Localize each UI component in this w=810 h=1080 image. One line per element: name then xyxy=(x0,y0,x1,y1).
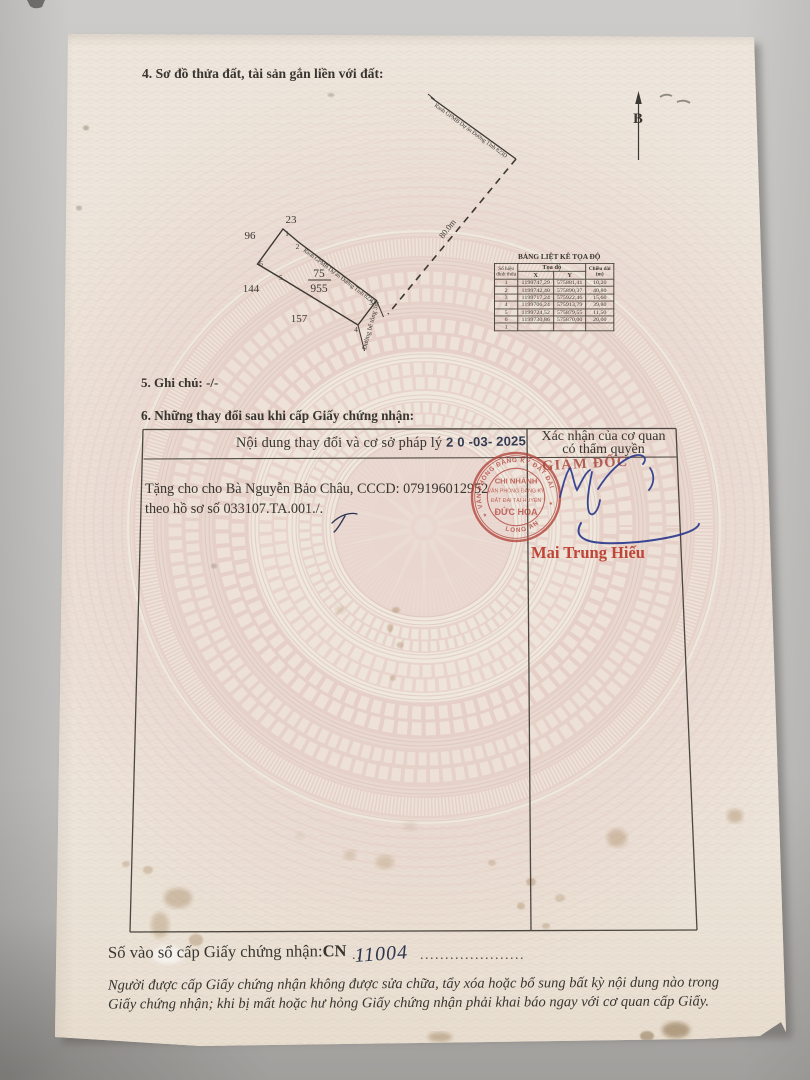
svg-text:★: ★ xyxy=(482,512,488,519)
svg-text:11004: 11004 xyxy=(354,941,409,967)
svg-text:LONG AN: LONG AN xyxy=(503,519,541,537)
svg-text:ĐẤT ĐAI TẠI HUYỆN: ĐẤT ĐAI TẠI HUYỆN xyxy=(491,496,542,504)
svg-text:CHI NHÁNH: CHI NHÁNH xyxy=(495,477,538,486)
svg-text:★: ★ xyxy=(548,501,554,508)
svg-text:ĐỨC HÒA: ĐỨC HÒA xyxy=(495,506,538,517)
svg-text:VĂN PHÒNG ĐĂNG KÝ: VĂN PHÒNG ĐĂNG KÝ xyxy=(487,488,545,495)
